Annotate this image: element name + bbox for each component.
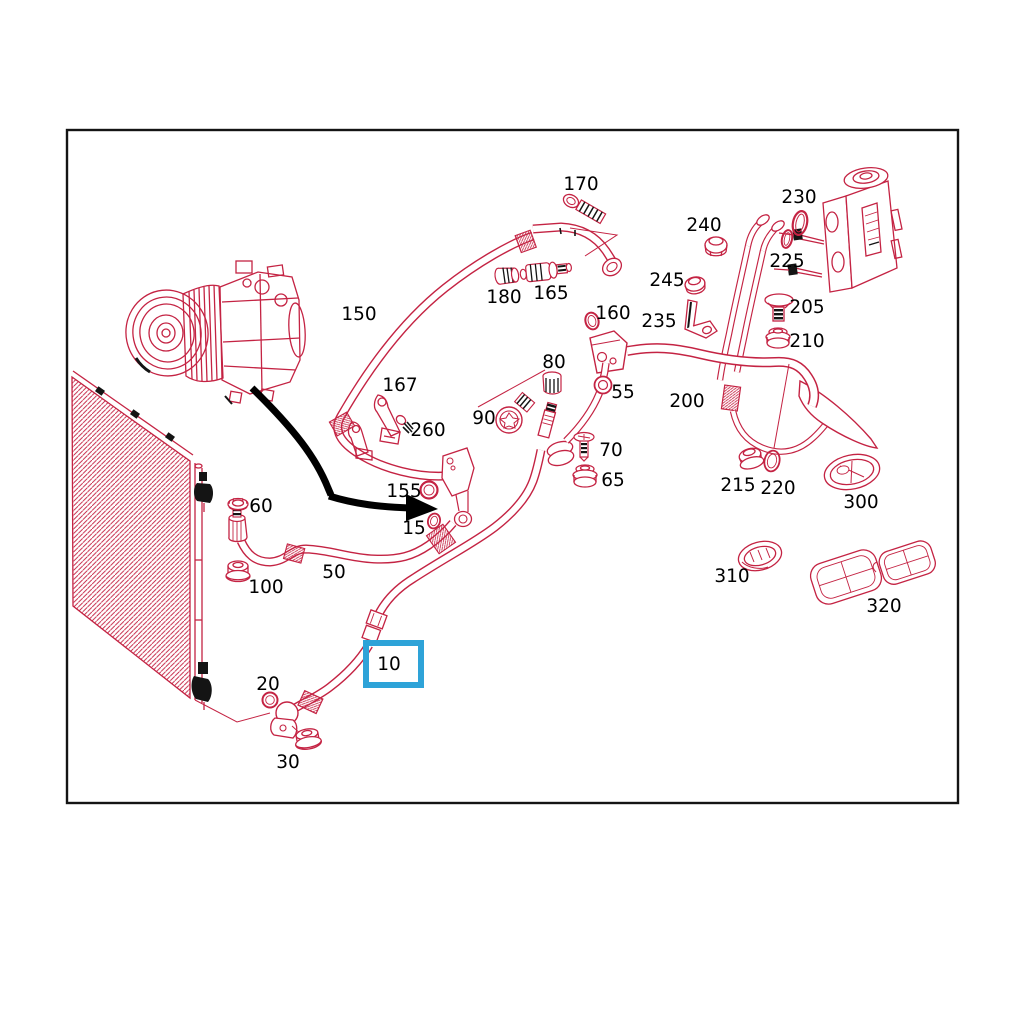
part-label-150[interactable]: 150 [341, 304, 376, 325]
part-label-10[interactable]: 10 [377, 654, 401, 675]
grommet-65-drawing [573, 465, 597, 487]
part-label-165[interactable]: 165 [533, 283, 568, 304]
part-label-225[interactable]: 225 [769, 251, 804, 272]
cap-60-drawing [228, 498, 248, 510]
part-label-235[interactable]: 235 [641, 311, 676, 332]
diagram-canvas: 1702302402252452052352101801651601501672… [0, 0, 1024, 1024]
part-label-30[interactable]: 30 [276, 752, 300, 773]
part-label-320[interactable]: 320 [866, 596, 901, 617]
part-label-210[interactable]: 210 [789, 331, 824, 352]
part-label-220[interactable]: 220 [760, 478, 795, 499]
part-label-70[interactable]: 70 [599, 440, 623, 461]
part-label-200[interactable]: 200 [669, 391, 704, 412]
grommet-210-drawing [766, 328, 790, 348]
part-label-90[interactable]: 90 [472, 408, 496, 429]
part-label-205[interactable]: 205 [789, 297, 824, 318]
part-label-167[interactable]: 167 [382, 375, 417, 396]
part-label-170[interactable]: 170 [563, 174, 598, 195]
part-label-230[interactable]: 230 [781, 187, 816, 208]
part-label-160[interactable]: 160 [595, 303, 630, 324]
part-label-60[interactable]: 60 [249, 496, 273, 517]
part-label-180[interactable]: 180 [486, 287, 521, 308]
part-label-55[interactable]: 55 [611, 382, 635, 403]
part-label-310[interactable]: 310 [714, 566, 749, 587]
parts-diagram-svg: 1702302402252452052352101801651601501672… [0, 0, 1024, 1024]
washer-55-drawing [595, 377, 612, 394]
cap-180-drawing [494, 266, 519, 285]
part-label-260[interactable]: 260 [410, 420, 445, 441]
part-label-100[interactable]: 100 [248, 577, 283, 598]
part-label-215[interactable]: 215 [720, 475, 755, 496]
diagram-border [67, 130, 958, 803]
part-label-65[interactable]: 65 [601, 470, 625, 491]
part-label-240[interactable]: 240 [686, 215, 721, 236]
part-label-15[interactable]: 15 [402, 518, 426, 539]
part-label-50[interactable]: 50 [322, 562, 346, 583]
part-label-300[interactable]: 300 [843, 492, 878, 513]
part-label-20[interactable]: 20 [256, 674, 280, 695]
cap-80-drawing [543, 372, 561, 394]
part-label-155[interactable]: 155 [386, 481, 421, 502]
part-label-245[interactable]: 245 [649, 270, 684, 291]
part-label-80[interactable]: 80 [542, 352, 566, 373]
